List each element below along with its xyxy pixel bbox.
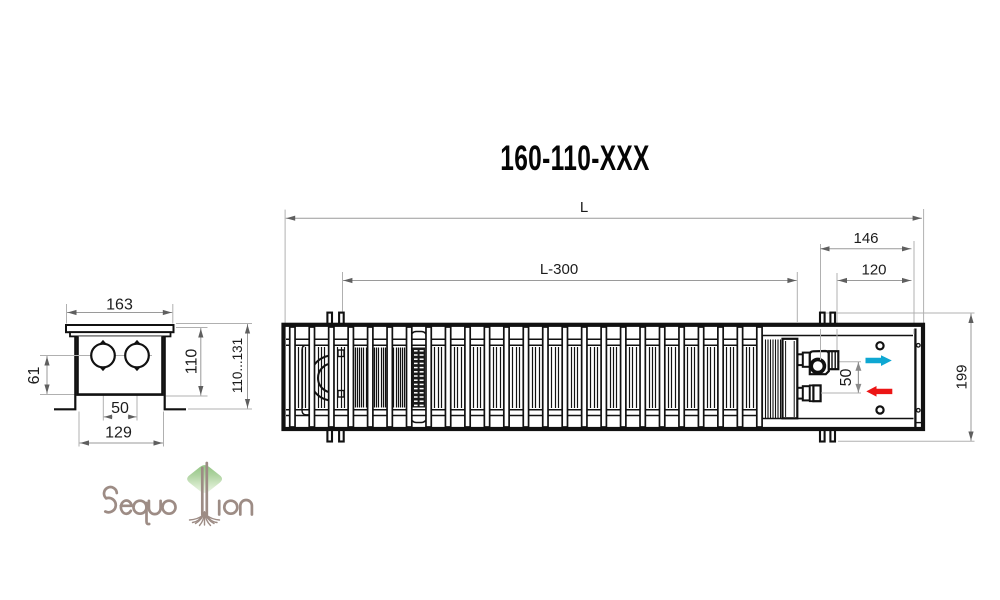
- svg-text:129: 129: [105, 425, 132, 442]
- svg-text:110: 110: [184, 349, 201, 375]
- svg-text:50: 50: [838, 369, 855, 387]
- svg-text:L: L: [580, 199, 588, 216]
- svg-text:L-300: L-300: [540, 261, 578, 278]
- svg-text:61: 61: [26, 367, 43, 385]
- svg-text:160-110-XXX: 160-110-XXX: [500, 140, 649, 178]
- svg-text:110...131: 110...131: [230, 338, 245, 393]
- svg-text:163: 163: [106, 297, 133, 314]
- svg-text:146: 146: [853, 230, 878, 247]
- svg-text:120: 120: [861, 262, 886, 279]
- svg-text:50: 50: [111, 400, 129, 417]
- svg-text:199: 199: [954, 364, 971, 389]
